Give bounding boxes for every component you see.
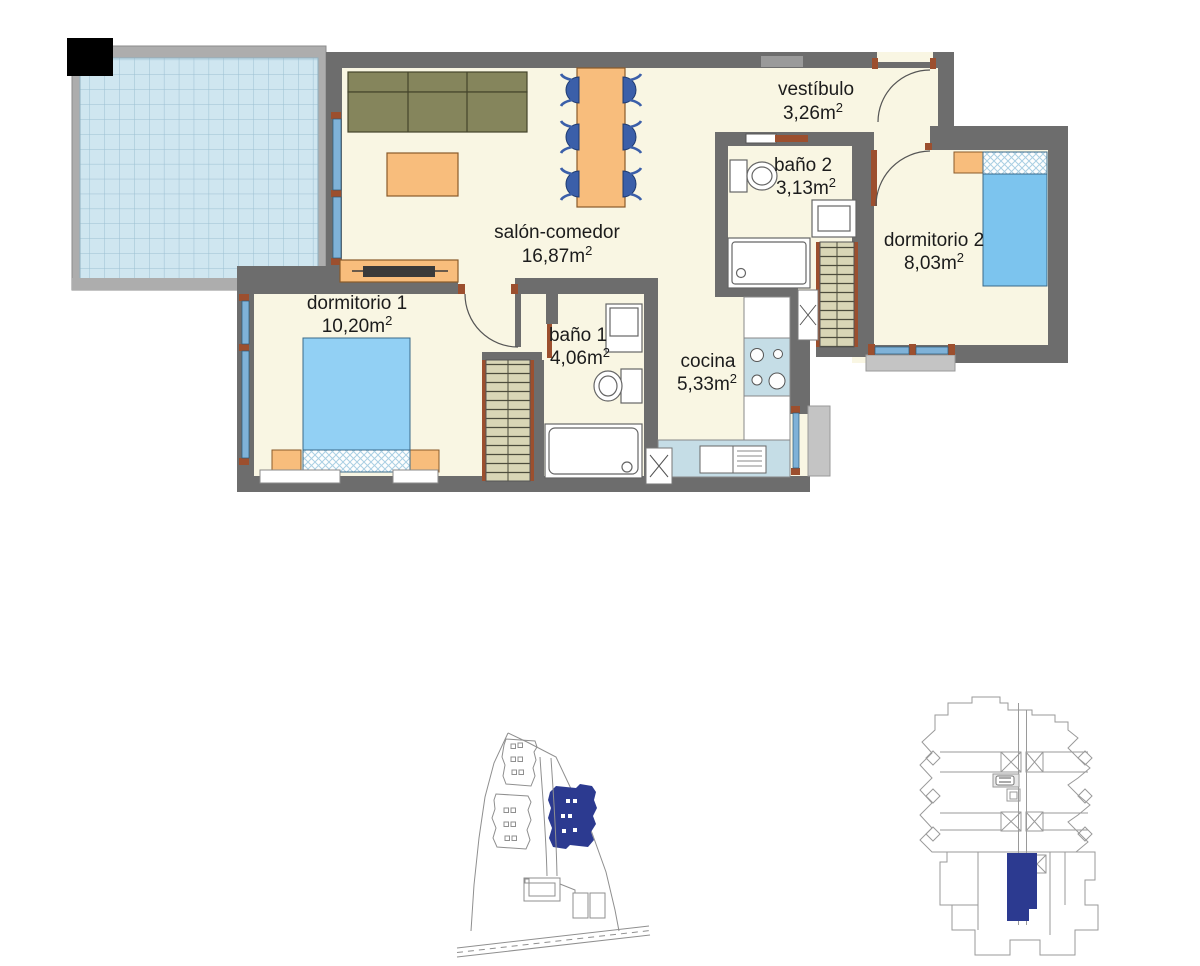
window-bedroom2 xyxy=(875,347,909,354)
room-area-vestibulo: 3,26m2 xyxy=(783,100,843,124)
bathtub xyxy=(545,424,642,478)
building-key-plan xyxy=(920,697,1098,955)
radiator xyxy=(260,470,340,483)
sofa xyxy=(348,72,527,132)
room-label-cocina: cocina xyxy=(681,351,736,372)
room-area-bano1: 4,06m2 xyxy=(550,345,610,369)
double-bed xyxy=(303,338,410,450)
terrace-edge xyxy=(72,278,240,290)
balcony-slabs xyxy=(808,355,955,476)
room-label-bano1: baño 1 xyxy=(549,325,607,346)
nightstand xyxy=(410,450,439,472)
wardrobe-bedroom2 xyxy=(816,242,858,347)
duct-shaft xyxy=(646,448,672,484)
highlighted-unit xyxy=(1007,853,1037,921)
wall-notch xyxy=(761,56,803,67)
site-plan xyxy=(457,733,650,957)
bed-pillow xyxy=(983,152,1047,174)
site-road xyxy=(457,926,650,957)
room-area-bano2: 3,13m2 xyxy=(776,175,836,199)
bathroom2-sliding-door xyxy=(746,134,808,143)
site-building-b xyxy=(492,794,531,849)
window-salon xyxy=(333,119,341,190)
radiator xyxy=(393,470,438,483)
terrace-tiles xyxy=(80,58,318,280)
window-bedroom1-2 xyxy=(242,351,249,458)
site-pool-area xyxy=(524,878,605,918)
window-salon-2 xyxy=(333,197,341,258)
apartment-floor-plan: salón-comedor 16,87m2 vestíbulo 3,26m2 b… xyxy=(0,0,1200,966)
room-area-dormitorio1: 10,20m2 xyxy=(322,313,393,337)
window-bedroom1 xyxy=(242,301,249,344)
floor-plan-page: salón-comedor 16,87m2 vestíbulo 3,26m2 b… xyxy=(0,0,1200,966)
tv-icon xyxy=(363,266,435,277)
nightstand xyxy=(954,152,983,173)
site-building-a xyxy=(502,739,537,786)
room-label-dormitorio1: dormitorio 1 xyxy=(307,293,407,314)
stove xyxy=(744,338,790,396)
dining-table xyxy=(577,68,625,207)
tv-unit xyxy=(340,260,458,282)
appliance-unit xyxy=(798,290,818,340)
coffee-table xyxy=(387,153,458,196)
room-label-salon: salón-comedor xyxy=(494,222,620,243)
window-bedroom2-2 xyxy=(916,347,948,354)
room-area-salon: 16,87m2 xyxy=(522,243,593,267)
room-label-vestibulo: vestíbulo xyxy=(778,79,854,100)
room-area-dormitorio2: 8,03m2 xyxy=(904,250,964,274)
terrace-corner-pillar xyxy=(67,38,113,76)
washbasin xyxy=(606,304,642,352)
room-area-cocina: 5,33m2 xyxy=(677,371,737,395)
single-bed xyxy=(983,174,1047,286)
wardrobe-bedroom1 xyxy=(482,360,534,481)
kitchen-sink xyxy=(700,446,766,473)
toilet xyxy=(730,160,777,192)
site-path xyxy=(540,757,547,876)
washbasin xyxy=(812,200,856,237)
room-label-dormitorio2: dormitorio 2 xyxy=(884,230,984,251)
room-label-bano2: baño 2 xyxy=(774,155,832,176)
terrace xyxy=(67,38,326,290)
bed-pillows xyxy=(303,450,410,472)
nightstand xyxy=(272,450,301,472)
elevator-car-icon xyxy=(993,774,1020,801)
window-kitchen xyxy=(793,413,799,468)
shower-tray xyxy=(728,238,810,288)
